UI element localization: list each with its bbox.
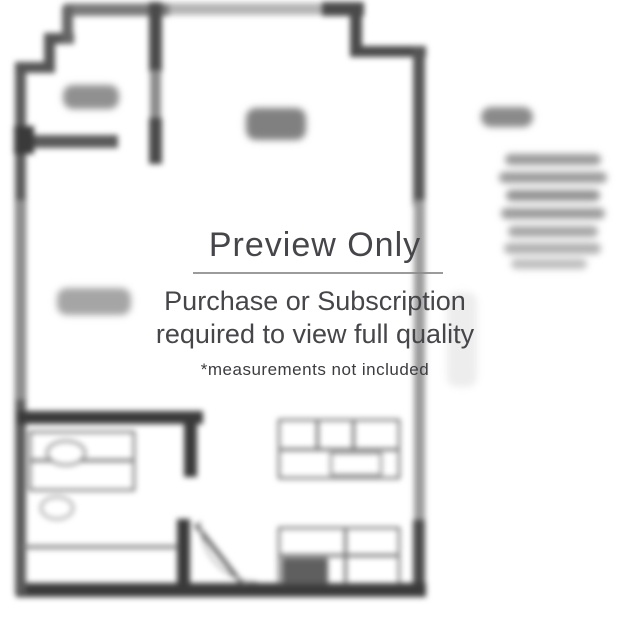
kitchen-bottom-counter-line	[278, 554, 400, 557]
side-title-blob	[481, 107, 533, 127]
kitchen-bottom-divider	[344, 527, 347, 585]
mid-wall	[17, 411, 203, 424]
side-text-line-7	[511, 259, 587, 269]
room-label-blob	[57, 288, 131, 315]
entry-wall-bottom	[149, 118, 162, 164]
wall-knob	[14, 126, 34, 154]
bath-sink	[46, 440, 86, 466]
topleft-step-v2	[62, 6, 73, 44]
kitchen-top-divider2	[352, 419, 355, 449]
side-text-line-6	[504, 243, 601, 254]
side-faint-smudge	[447, 292, 477, 387]
kitchen-top-counter-line	[278, 448, 400, 451]
side-text-line-5	[508, 226, 598, 237]
side-text-line-2	[499, 172, 607, 183]
bath-door-arc	[199, 521, 257, 583]
bath-divider-line	[23, 545, 178, 549]
bath-wall-top	[184, 411, 197, 477]
right-wall-middle	[414, 200, 425, 530]
closet-wall	[20, 135, 118, 148]
left-wall-fade	[16, 200, 25, 400]
kitchen-bottom-block	[282, 558, 328, 583]
bath-wall-bottom	[177, 519, 190, 591]
kitchen-appliance	[330, 452, 382, 476]
kitchen-top-divider1	[316, 419, 319, 449]
closet-label-blob	[63, 85, 119, 109]
floor-plan-canvas	[0, 0, 630, 624]
side-text-line-1	[505, 154, 601, 165]
floor-plan-preview-image: Preview Only Purchase or Subscription re…	[0, 0, 630, 624]
bath-toilet	[40, 496, 74, 520]
living-label-blob	[246, 108, 306, 140]
right-wall-top	[413, 46, 425, 206]
entry-wall-mid	[150, 70, 161, 120]
side-text-line-4	[501, 208, 605, 219]
side-text-line-3	[506, 190, 600, 201]
entry-wall-top	[149, 2, 162, 72]
bottom-wall	[16, 583, 426, 597]
